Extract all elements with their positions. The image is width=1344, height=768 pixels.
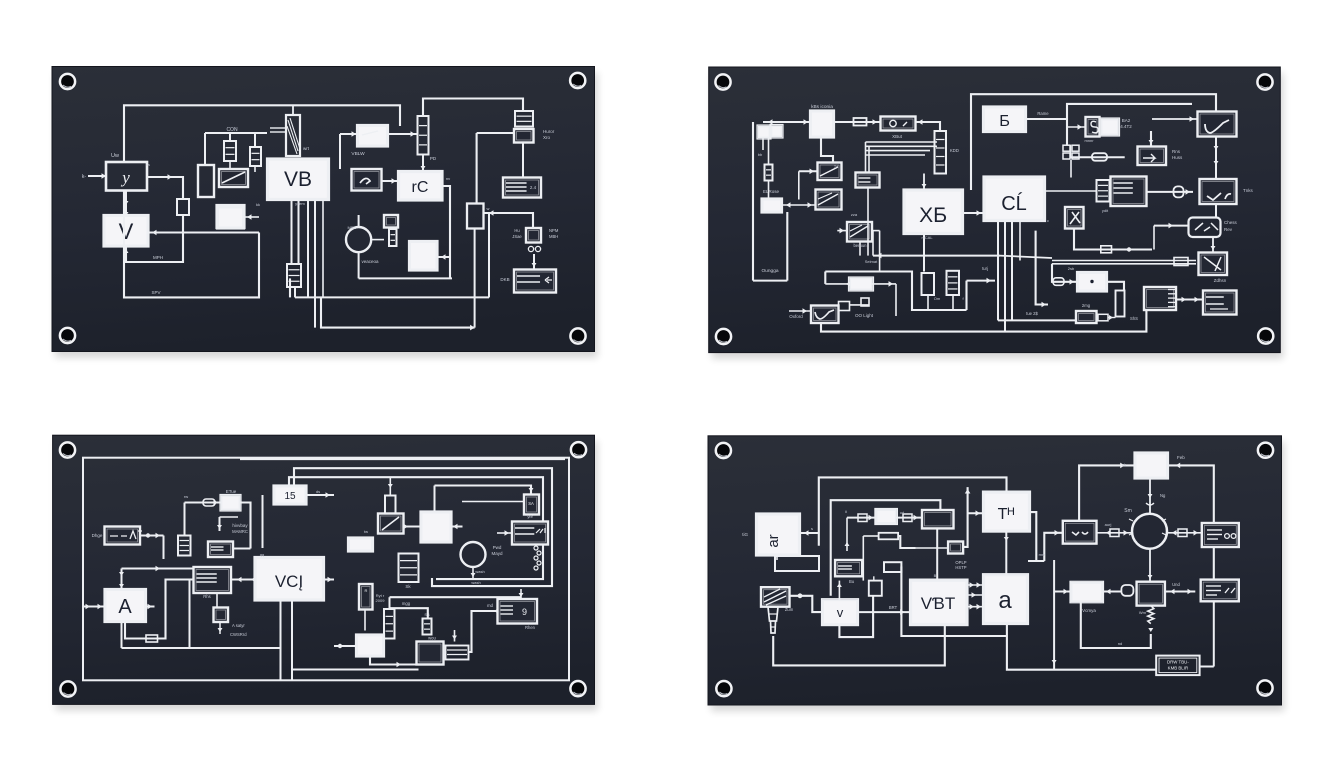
svg-text:MAMRC: MAMRC xyxy=(232,529,248,534)
svg-text:w: w xyxy=(487,206,490,211)
svg-text:ShS: ShS xyxy=(1130,316,1138,321)
svg-text:zza: zza xyxy=(851,212,858,217)
svg-text:mCAL: mCAL xyxy=(921,235,933,240)
svg-text:DRW TBU-: DRW TBU- xyxy=(1167,660,1189,665)
svg-text:ds: ds xyxy=(316,489,320,494)
svg-text:s: s xyxy=(811,526,813,531)
svg-text:Und: Und xyxy=(1172,582,1180,587)
svg-text:BA2: BA2 xyxy=(1122,118,1131,123)
svg-text:NPM: NPM xyxy=(549,228,559,233)
svg-text:Rhs: Rhs xyxy=(203,594,210,599)
svg-text:R: R xyxy=(365,588,368,593)
svg-text:ydit: ydit xyxy=(1102,208,1109,213)
svg-text:Mayd: Mayd xyxy=(491,551,503,556)
svg-text:15: 15 xyxy=(284,491,296,502)
svg-text:aurj: aurj xyxy=(1105,522,1112,527)
svg-text:7d: 7d xyxy=(834,164,838,169)
svg-text:VBLW: VBLW xyxy=(351,151,365,157)
svg-text:Huror: Huror xyxy=(543,129,555,134)
svg-text:Chess: Chess xyxy=(1224,220,1238,225)
svg-text:V: V xyxy=(119,219,134,244)
svg-text:2sb: 2sb xyxy=(1068,266,1075,271)
svg-text:Zdhsn: Zdhsn xyxy=(1214,278,1227,283)
svg-text:md: md xyxy=(487,603,493,608)
svg-text:PD: PD xyxy=(430,156,437,161)
svg-text:MPH: MPH xyxy=(153,255,163,260)
svg-text:Huss: Huss xyxy=(1172,155,1183,160)
svg-text:Hu: Hu xyxy=(514,228,520,233)
svg-text:MBH: MBH xyxy=(549,234,558,239)
svg-text:Bu: Bu xyxy=(849,579,855,584)
svg-text:2009: 2009 xyxy=(376,598,386,603)
svg-text:B: B xyxy=(934,573,937,578)
svg-text:ETue: ETue xyxy=(226,489,237,494)
svg-text:c: c xyxy=(1047,218,1049,223)
svg-text:SPV: SPV xyxy=(151,290,160,295)
svg-text:A: A xyxy=(118,596,132,618)
svg-text:A satyr: A satyr xyxy=(232,623,245,628)
svg-text:Rns: Rns xyxy=(1172,149,1181,154)
svg-text:KDD: KDD xyxy=(950,148,959,153)
svg-text:hivvbay: hivvbay xyxy=(232,523,248,528)
svg-text:ybf: ybf xyxy=(527,514,533,519)
svg-text:od: od xyxy=(900,510,904,515)
svg-text:Zum: Zum xyxy=(785,607,794,612)
svg-text:KMB BLIR: KMB BLIR xyxy=(1168,666,1189,671)
svg-text:kBs iconia: kBs iconia xyxy=(811,104,833,110)
svg-text:Om: Om xyxy=(934,296,941,301)
svg-text:beruun: beruun xyxy=(853,243,867,248)
svg-text:wrt: wrt xyxy=(303,146,310,151)
svg-text:Vcmya: Vcmya xyxy=(1082,608,1096,613)
svg-text:Dhge: Dhge xyxy=(92,533,103,538)
svg-text:qq: qq xyxy=(260,552,264,557)
svg-text:CWSRrd: CWSRrd xyxy=(230,632,247,637)
svg-text:Ƃ: Ƃ xyxy=(999,113,1010,130)
svg-text:MBC: MBC xyxy=(348,225,357,230)
svg-text:Sk: Sk xyxy=(405,584,411,589)
svg-text:OO Light: OO Light xyxy=(855,313,874,318)
svg-text:ii: ii xyxy=(845,509,847,514)
svg-text:Feb: Feb xyxy=(1177,455,1185,460)
svg-text:Rhen: Rhen xyxy=(525,625,536,630)
svg-text:a: a xyxy=(998,587,1012,614)
svg-text:XƂ: XƂ xyxy=(919,204,947,227)
svg-text:mm: mm xyxy=(1039,552,1046,557)
svg-text:bb: bb xyxy=(758,152,763,157)
svg-text:nd: nd xyxy=(1118,641,1122,646)
svg-text:Tᴴ: Tᴴ xyxy=(998,506,1015,523)
svg-text:Tnks: Tnks xyxy=(1243,188,1254,193)
svg-text:VCĮ: VCĮ xyxy=(275,572,303,591)
svg-text:Sm: Sm xyxy=(1124,508,1132,514)
svg-text:kk: kk xyxy=(256,202,260,207)
svg-text:XBut: XBut xyxy=(892,134,903,139)
svg-text:nv: nv xyxy=(446,176,450,181)
svg-text:y: y xyxy=(120,168,130,187)
svg-text:mnnr: mnnr xyxy=(1084,138,1094,143)
svg-text:veaceoa: veaceoa xyxy=(361,259,379,264)
svg-text:2.4: 2.4 xyxy=(530,185,537,190)
svg-text:JSae: JSae xyxy=(512,234,522,239)
svg-text:ck: ck xyxy=(1122,462,1126,467)
svg-text:Oungga: Oungga xyxy=(761,268,778,274)
svg-text:mgg: mgg xyxy=(402,601,411,606)
svg-text:turj: turj xyxy=(982,266,988,271)
svg-text:tue 2$: tue 2$ xyxy=(1026,311,1038,316)
svg-text:VB: VB xyxy=(284,168,312,191)
svg-text:Ng: Ng xyxy=(1160,493,1166,498)
svg-text:VƁT: VƁT xyxy=(921,594,956,613)
svg-text:wash: wash xyxy=(475,569,484,574)
svg-text:rw: rw xyxy=(184,494,188,499)
svg-text:Rame: Rame xyxy=(1037,111,1049,116)
svg-text:rC: rC xyxy=(412,179,429,196)
svg-text:ar: ar xyxy=(765,534,782,547)
svg-text:wou: wou xyxy=(428,636,436,641)
svg-text:4.4T2: 4.4T2 xyxy=(1120,124,1132,129)
svg-text:Rev: Rev xyxy=(1224,227,1233,232)
svg-text:2mg: 2mg xyxy=(1082,303,1091,308)
svg-text:SA: SA xyxy=(528,501,534,506)
svg-text:k-: k- xyxy=(82,174,87,180)
svg-text:CĹ: CĹ xyxy=(1001,192,1027,215)
svg-text:Selmat: Selmat xyxy=(865,259,878,264)
svg-text:Oxford: Oxford xyxy=(789,314,803,319)
svg-text:Xro: Xro xyxy=(543,135,551,140)
svg-text:Uw: Uw xyxy=(111,153,119,159)
svg-text:ELRose: ELRose xyxy=(763,189,780,194)
svg-text:v: v xyxy=(837,605,844,620)
svg-text:Pwd: Pwd xyxy=(493,545,502,550)
svg-text:tw: tw xyxy=(364,529,368,534)
svg-text:Wm: Wm xyxy=(1139,610,1147,615)
svg-text:DKB: DKB xyxy=(500,277,509,282)
svg-text:wash: wash xyxy=(471,580,480,585)
svg-text:ynem: ynem xyxy=(295,201,305,206)
svg-text:tiG: tiG xyxy=(742,532,748,537)
svg-text:HSTP: HSTP xyxy=(955,565,966,570)
svg-text:BRT: BRT xyxy=(889,605,898,610)
svg-text:9: 9 xyxy=(522,607,527,617)
